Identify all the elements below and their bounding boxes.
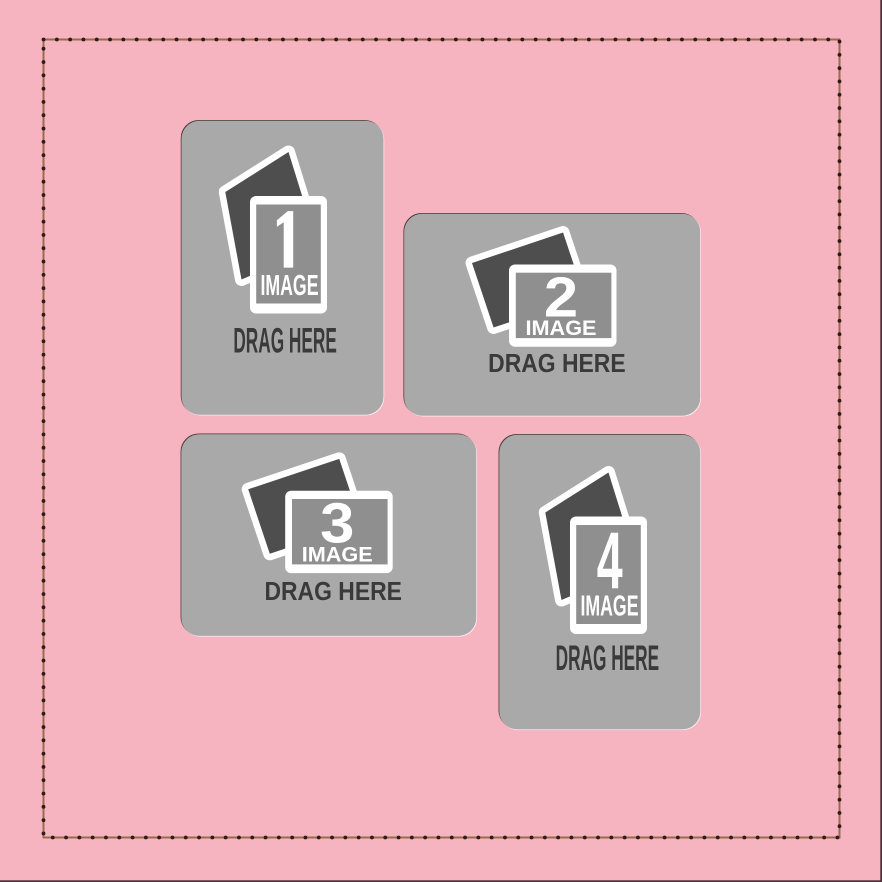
svg-text:IMAGE: IMAGE bbox=[261, 270, 319, 302]
svg-text:DRAG HERE: DRAG HERE bbox=[488, 350, 626, 378]
svg-text:IMAGE: IMAGE bbox=[302, 543, 373, 567]
svg-text:DRAG HERE: DRAG HERE bbox=[556, 638, 660, 678]
svg-text:DRAG HERE: DRAG HERE bbox=[233, 320, 337, 360]
svg-text:IMAGE: IMAGE bbox=[581, 591, 639, 623]
svg-text:DRAG HERE: DRAG HERE bbox=[264, 578, 402, 606]
svg-text:IMAGE: IMAGE bbox=[526, 316, 597, 340]
